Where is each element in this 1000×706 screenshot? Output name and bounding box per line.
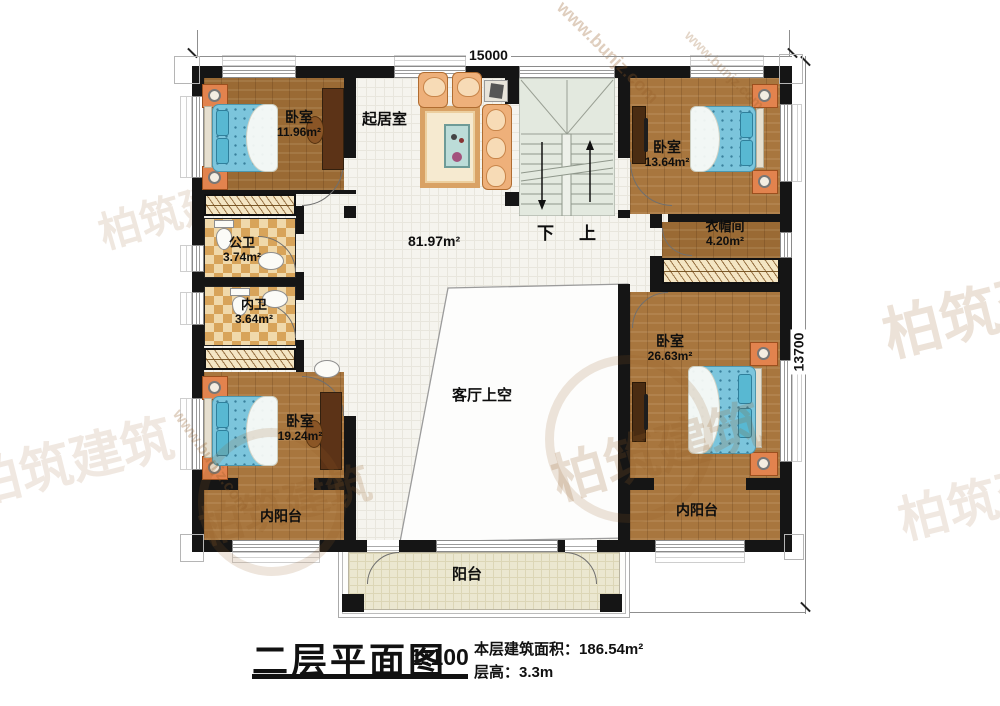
wardrobe-hatch-right [662, 258, 780, 284]
window-sill [792, 360, 802, 462]
window-sill [180, 245, 192, 272]
wall [618, 292, 630, 540]
room-label-bath-public: 公卫 3.74m² [202, 236, 282, 264]
floor-plan-canvas: 柏筑建筑 柏筑建筑 [0, 0, 1000, 706]
room-name: 卧室 [249, 110, 349, 126]
floor-area-value: 186.54m² [579, 641, 643, 658]
bed-pillow [740, 140, 753, 166]
void-label: 客厅上空 [452, 384, 512, 405]
floor-height-label: 层高： [474, 664, 519, 681]
stairs-down-label: 下 [537, 219, 554, 244]
window-sill [180, 96, 192, 178]
plan-scale: 1:100 [410, 644, 469, 671]
title-underline [252, 674, 468, 679]
room-name: 卧室 [617, 140, 717, 156]
room-area: 26.63m² [620, 350, 720, 363]
room-label-bedroom-r: 卧室 26.63m² [620, 334, 720, 363]
watermark-brand: 柏筑建筑 [873, 235, 1000, 373]
room-name: 公卫 [202, 236, 282, 251]
wall [296, 66, 394, 78]
bed-pillow [216, 402, 229, 428]
window [519, 66, 615, 78]
wall [344, 206, 356, 218]
bed-headboard [204, 398, 212, 458]
bed-pillow [216, 110, 229, 136]
nightstand [752, 170, 778, 194]
staircase [519, 78, 615, 216]
window-sill [180, 398, 192, 470]
room-area: 19.24m² [250, 430, 350, 443]
window [222, 66, 296, 78]
room-area: 11.96m² [249, 126, 349, 139]
window-sill [180, 292, 192, 325]
floor-area-line: 本层建筑面积：186.54m² [474, 638, 643, 659]
dimension-right-value: 13700 [790, 330, 806, 375]
hall-area-label: 81.97m² [408, 233, 460, 249]
wall [505, 192, 519, 206]
wall [192, 272, 204, 292]
balcony-post-left [342, 594, 364, 612]
wardrobe-hatch-tl [204, 194, 296, 216]
wall [650, 256, 662, 292]
floor-height-line: 层高：3.3m [474, 661, 553, 682]
wall [314, 478, 356, 490]
window [780, 232, 792, 258]
room-name: 衣帽间 [685, 220, 765, 235]
bed-headboard [204, 106, 212, 168]
floor-height-value: 3.3m [519, 664, 553, 681]
room-area: 13.64m² [617, 156, 717, 169]
room-area: 3.74m² [202, 251, 282, 264]
sink [314, 360, 340, 378]
axis-marker [180, 534, 204, 562]
bed-pillow [738, 408, 752, 438]
stairs-up-label: 上 [579, 219, 596, 244]
room-label-living: 起居室 [362, 108, 407, 129]
room-label-bedroom-bl: 卧室 19.24m² [250, 414, 350, 443]
bed-headboard [756, 108, 764, 168]
void-over-living-outline [396, 280, 632, 542]
tv-screen [644, 394, 648, 430]
wall [296, 272, 304, 300]
window [780, 360, 792, 462]
room-label-bath-inner: 内卫 3.64m² [214, 298, 294, 326]
wall [296, 340, 304, 372]
balcony-label: 阳台 [452, 563, 482, 584]
balcony-post-right [600, 594, 622, 612]
axis-marker [779, 54, 803, 84]
bed-pillow [738, 374, 752, 404]
window-sill [232, 552, 320, 563]
room-name: 卧室 [620, 334, 720, 350]
window [655, 540, 745, 552]
room-label-bedroom-tl: 卧室 11.96m² [249, 110, 349, 139]
axis-marker [174, 56, 200, 84]
wall [615, 66, 690, 78]
watermark-brand: 柏筑建筑 [890, 435, 1000, 553]
window [232, 540, 320, 552]
inner-balcony-right-label: 内阳台 [676, 500, 718, 520]
wall [618, 284, 630, 292]
wall [618, 210, 630, 218]
wall [746, 478, 792, 490]
wall [780, 182, 792, 232]
extension-line [197, 30, 198, 56]
toilet [214, 220, 234, 228]
wall [204, 278, 304, 286]
window [780, 104, 792, 182]
floor-area-label: 本层建筑面积： [474, 641, 579, 658]
wall [618, 478, 654, 490]
window [690, 66, 764, 78]
axis-marker [784, 534, 804, 560]
sofa [482, 104, 512, 190]
window [192, 292, 204, 325]
inner-balcony-left-label: 内阳台 [260, 506, 302, 526]
armchair [452, 72, 482, 108]
nightstand [750, 342, 778, 366]
wardrobe-hatch-bl [204, 348, 296, 370]
room-label-cloakroom: 衣帽间 4.20m² [685, 220, 765, 248]
room-name: 内卫 [214, 298, 294, 313]
wall [662, 284, 780, 292]
room-area: 4.20m² [685, 235, 765, 248]
tv-unit [484, 80, 508, 102]
wall [320, 540, 367, 552]
wall [399, 540, 436, 552]
dimension-top-value: 15000 [466, 47, 511, 63]
room-area: 3.64m² [214, 313, 294, 326]
wall [597, 540, 655, 552]
extension-line [630, 612, 806, 613]
watermark-brand: 柏筑建筑 [0, 396, 180, 519]
window-sill [655, 552, 745, 563]
wall [558, 540, 565, 552]
room-name: 卧室 [250, 414, 350, 430]
wall [296, 206, 304, 234]
armchair [418, 72, 448, 108]
coffee-table [444, 124, 470, 168]
window [436, 540, 558, 552]
bed-pillow [740, 112, 753, 138]
window-sill [792, 104, 802, 182]
nightstand [752, 84, 778, 108]
bed-pillow [216, 430, 229, 456]
room-label-bedroom-tr: 卧室 13.64m² [617, 140, 717, 169]
wall [650, 214, 662, 228]
nightstand [750, 452, 778, 476]
bed-pillow [216, 138, 229, 164]
toilet [230, 288, 250, 296]
